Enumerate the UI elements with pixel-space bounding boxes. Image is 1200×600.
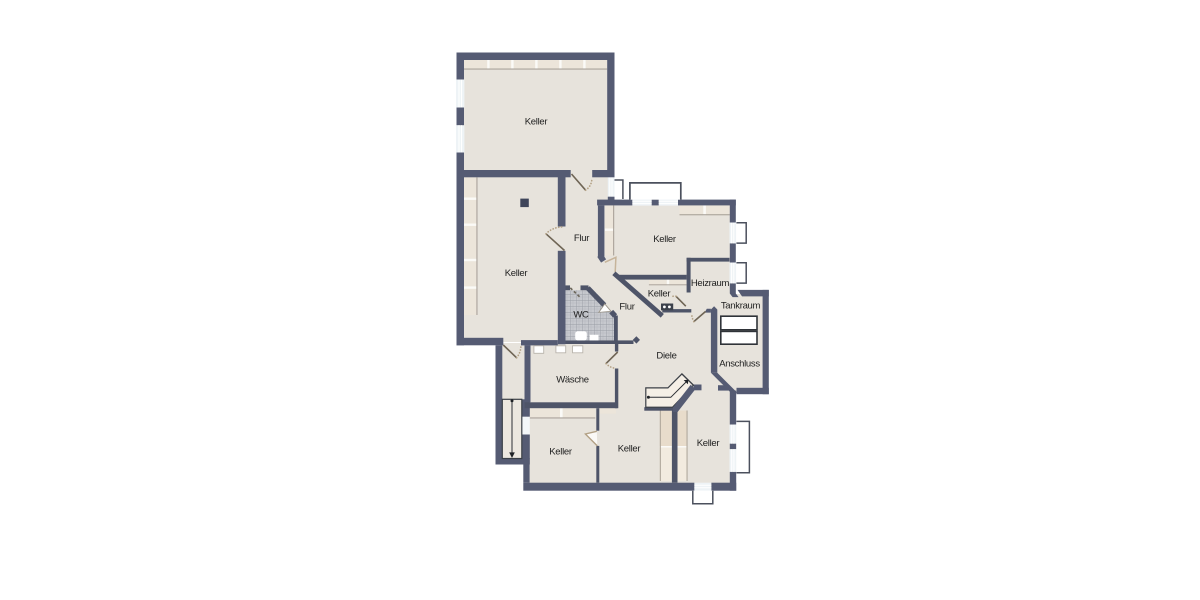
svg-text:Heizraum: Heizraum — [691, 278, 730, 289]
svg-text:WC: WC — [573, 310, 589, 321]
svg-text:Keller: Keller — [618, 444, 641, 455]
svg-text:Keller: Keller — [697, 438, 720, 449]
svg-text:Flur: Flur — [574, 233, 589, 244]
svg-text:Diele: Diele — [656, 351, 676, 362]
svg-text:Tankraum: Tankraum — [721, 301, 761, 312]
svg-text:Keller: Keller — [648, 289, 671, 300]
svg-text:Flur: Flur — [619, 302, 634, 313]
svg-text:Keller: Keller — [505, 268, 528, 279]
svg-text:Keller: Keller — [549, 447, 572, 458]
svg-text:Keller: Keller — [525, 117, 548, 128]
svg-text:Wäsche: Wäsche — [556, 375, 589, 386]
svg-text:Keller: Keller — [653, 234, 676, 245]
svg-text:Anschluss: Anschluss — [719, 359, 760, 370]
